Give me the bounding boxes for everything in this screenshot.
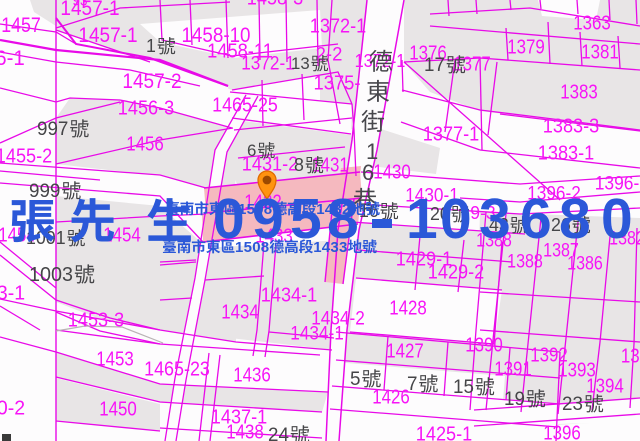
svg-text:1434: 1434 [221, 302, 259, 324]
svg-text:24: 24 [268, 425, 289, 441]
svg-text:1003: 1003 [29, 264, 73, 286]
svg-text:1455-2: 1455-2 [0, 146, 52, 168]
svg-text:139: 139 [621, 346, 640, 368]
svg-text:1457-2: 1457-2 [122, 70, 181, 93]
svg-text:8: 8 [559, 187, 591, 251]
svg-text:23: 23 [562, 394, 583, 415]
svg-text:1383-3: 1383-3 [543, 116, 599, 138]
svg-text:6-1: 6-1 [0, 47, 25, 70]
svg-text:1430: 1430 [373, 162, 411, 184]
svg-text:1453: 1453 [96, 349, 134, 371]
svg-text:7: 7 [407, 374, 418, 395]
svg-text:15: 15 [453, 377, 474, 398]
svg-text:1: 1 [146, 36, 156, 56]
svg-text:1456: 1456 [126, 134, 164, 156]
svg-text:5: 5 [350, 369, 361, 390]
svg-text:1436: 1436 [233, 365, 271, 387]
svg-text:1381: 1381 [581, 42, 619, 64]
svg-text:6: 6 [247, 141, 256, 160]
svg-text:1386: 1386 [567, 253, 603, 274]
svg-text:1428: 1428 [389, 298, 427, 320]
svg-text:1465-23: 1465-23 [144, 359, 210, 381]
svg-text:1456-3: 1456-3 [118, 98, 174, 120]
svg-text:0-2: 0-2 [0, 398, 25, 420]
svg-text:1394: 1394 [586, 376, 624, 398]
svg-text:1: 1 [406, 187, 438, 251]
svg-text:1431: 1431 [311, 155, 349, 177]
svg-text:1377-1: 1377-1 [423, 124, 479, 146]
svg-text:1383: 1383 [560, 82, 598, 104]
svg-text:1425-1: 1425-1 [416, 424, 472, 441]
svg-text:0: 0 [601, 187, 633, 251]
svg-text:1465-25: 1465-25 [212, 95, 278, 117]
svg-text:1453-3: 1453-3 [68, 310, 124, 332]
svg-text:13: 13 [291, 54, 310, 73]
svg-text:1434-1: 1434-1 [261, 285, 317, 307]
svg-text:1457: 1457 [1, 14, 41, 37]
svg-text:9: 9 [252, 187, 284, 251]
svg-text:5: 5 [244, 239, 252, 256]
svg-text:1375-: 1375- [314, 73, 361, 95]
svg-text:8: 8 [327, 187, 359, 251]
svg-text:3-1: 3-1 [0, 283, 25, 305]
svg-text:93: 93 [73, 0, 88, 9]
svg-text:1426: 1426 [372, 387, 410, 409]
svg-text:0: 0 [440, 187, 472, 251]
svg-text:1427: 1427 [386, 341, 424, 363]
svg-text:1363: 1363 [573, 13, 611, 35]
svg-text:1391: 1391 [494, 359, 532, 381]
svg-text:6: 6 [362, 160, 374, 185]
svg-text:999: 999 [29, 181, 60, 202]
svg-text:1372-1: 1372-1 [310, 16, 366, 38]
svg-text:6: 6 [520, 187, 552, 251]
svg-text:1429-2: 1429-2 [428, 262, 484, 284]
svg-text:1379: 1379 [507, 37, 545, 59]
svg-text:1390: 1390 [465, 335, 503, 357]
svg-text:1457-1: 1457-1 [60, 0, 119, 20]
svg-text:1457-1: 1457-1 [78, 24, 137, 47]
svg-text:1383-1: 1383-1 [538, 143, 594, 165]
svg-text:1434-1: 1434-1 [290, 323, 344, 344]
svg-text:1438: 1438 [226, 422, 264, 441]
svg-text:17: 17 [424, 55, 445, 76]
svg-text:1396: 1396 [543, 423, 581, 441]
svg-text:3: 3 [479, 187, 511, 251]
svg-text:1458-3: 1458-3 [247, 0, 303, 10]
svg-text:1388: 1388 [507, 251, 543, 272]
svg-text:19: 19 [504, 389, 525, 410]
svg-text:997: 997 [37, 119, 68, 140]
svg-text:5: 5 [290, 187, 322, 251]
svg-text:0: 0 [213, 187, 245, 251]
svg-text:1372-1: 1372-1 [241, 53, 295, 74]
svg-text:8: 8 [294, 155, 304, 175]
svg-text:1450: 1450 [99, 399, 137, 421]
